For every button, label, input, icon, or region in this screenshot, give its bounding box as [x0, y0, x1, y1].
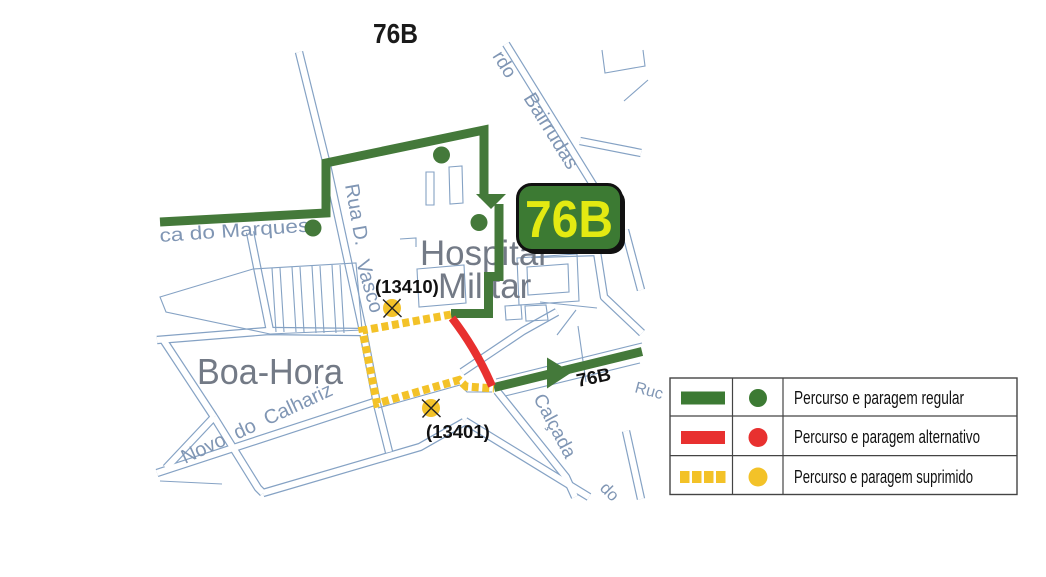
- svg-text:76B: 76B: [373, 18, 418, 49]
- svg-text:76B: 76B: [525, 191, 613, 249]
- svg-text:Boa-Hora: Boa-Hora: [197, 351, 344, 392]
- svg-text:Percurso e paragem suprimido: Percurso e paragem suprimido: [794, 466, 973, 487]
- svg-text:(13401): (13401): [426, 421, 490, 442]
- svg-text:Percurso e paragem regular: Percurso e paragem regular: [794, 387, 964, 408]
- svg-text:Percurso e paragem alternativo: Percurso e paragem alternativo: [794, 426, 980, 447]
- svg-text:(13410): (13410): [375, 276, 439, 297]
